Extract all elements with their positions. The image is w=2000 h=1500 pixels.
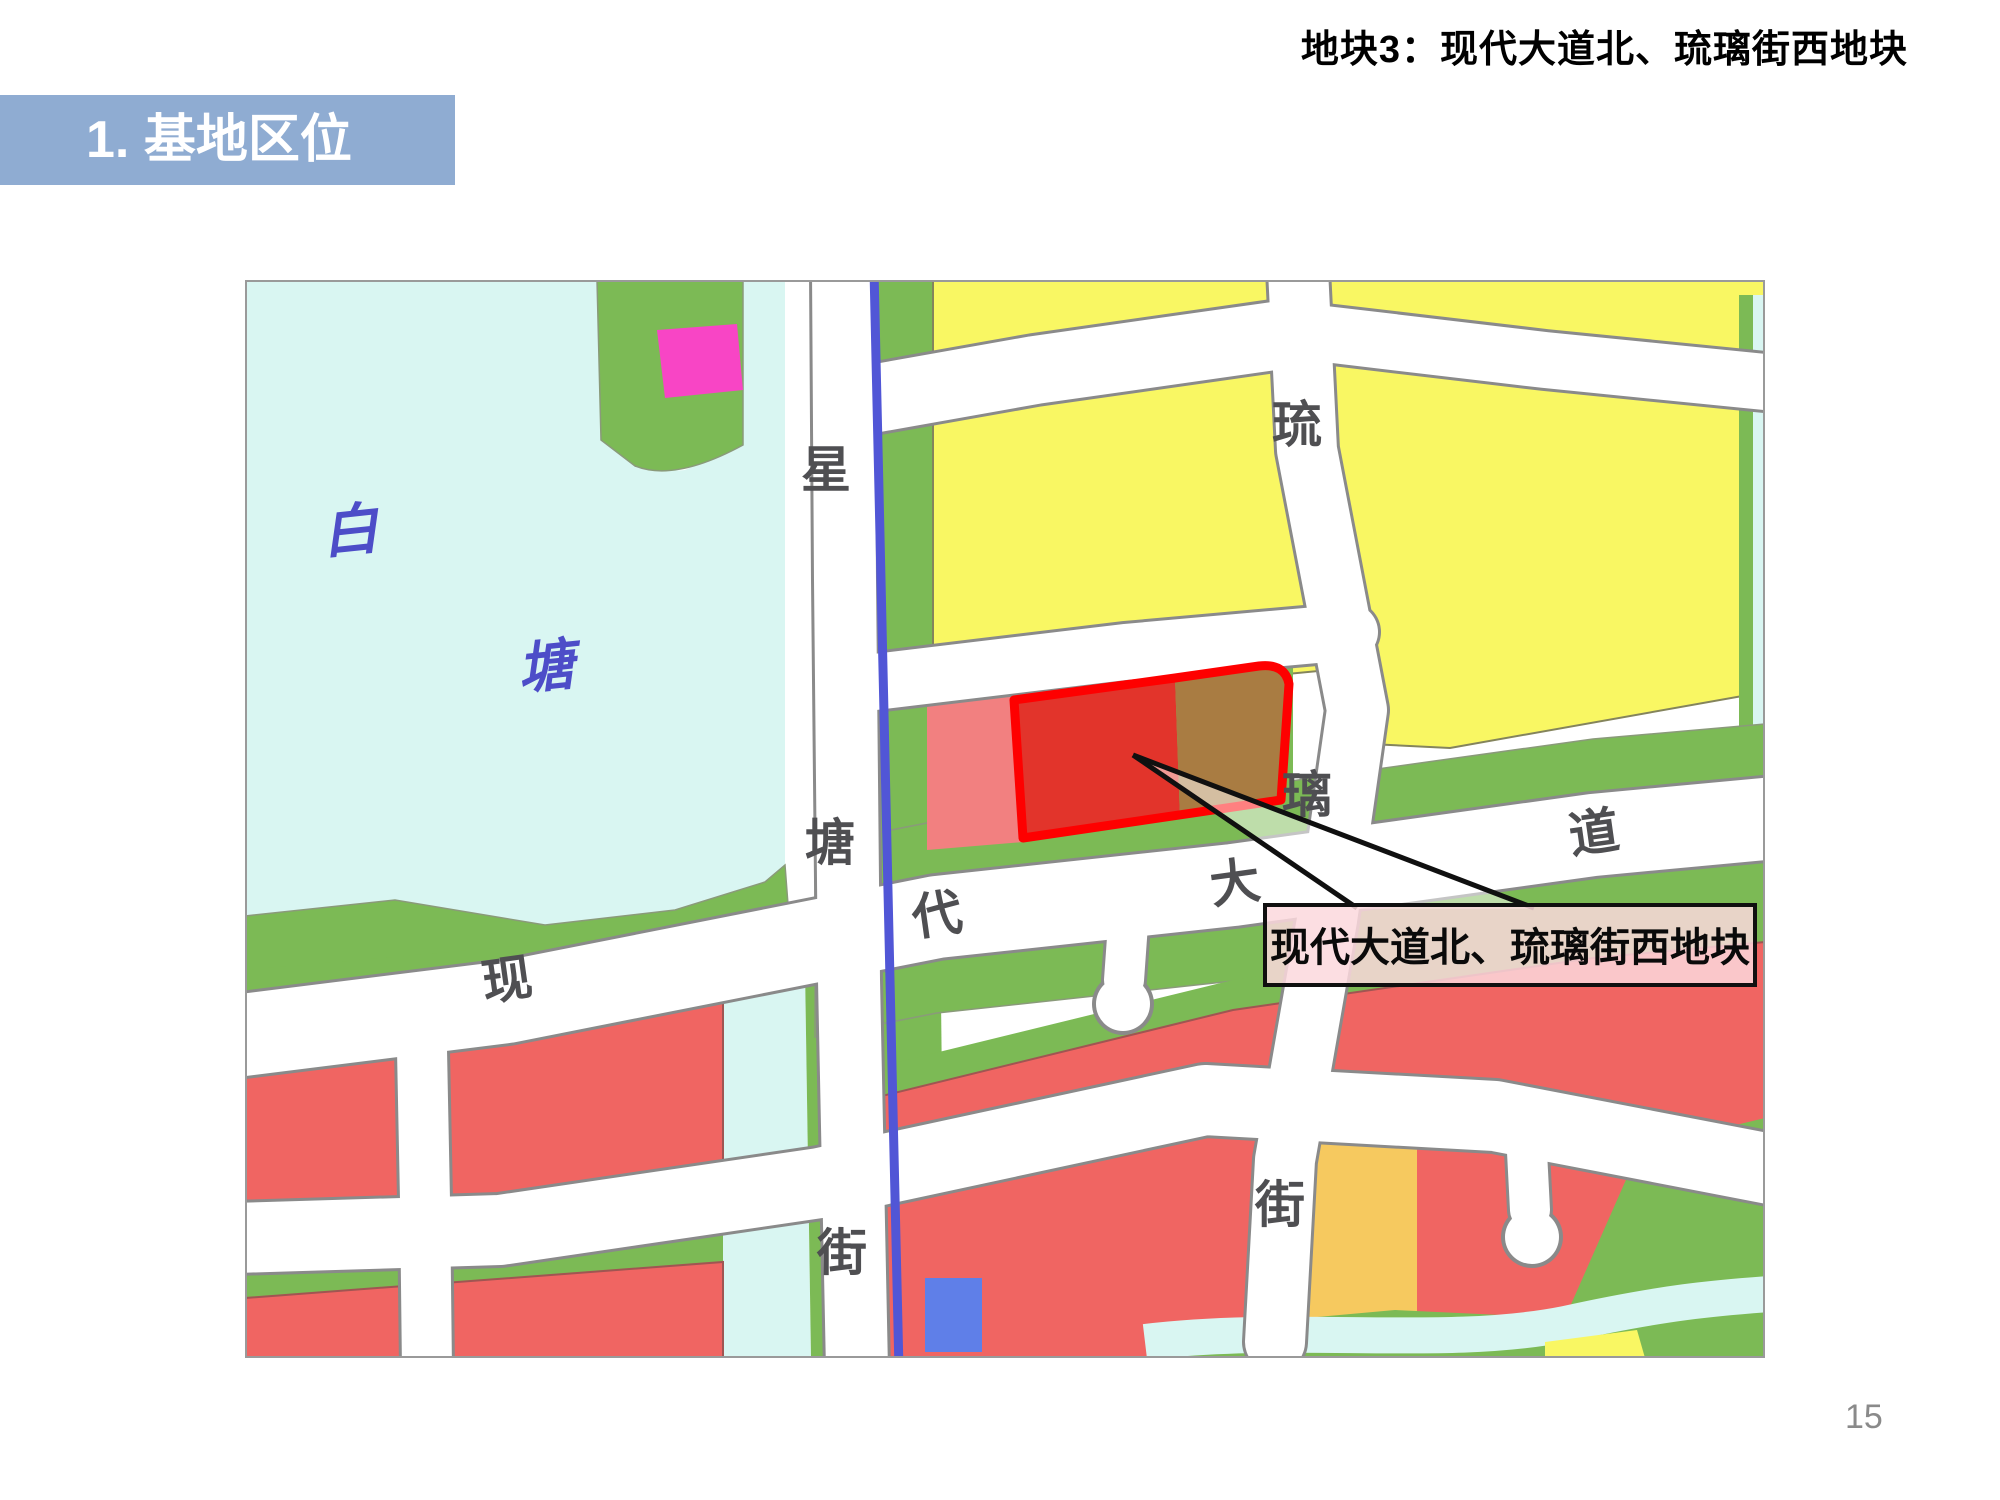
location-map: 白 塘 星 塘 街 现 代 大 道 琉 璃 街 现代大道北、琉璃街西地块 — [245, 280, 1765, 1358]
street-label-xiandai-4: 道 — [1565, 802, 1622, 864]
page-number: 15 — [1845, 1398, 1883, 1437]
street-label-xingtang-2: 塘 — [805, 815, 855, 871]
section-title: 1. 基地区位 — [0, 95, 455, 185]
map-pink-block — [927, 686, 1023, 850]
map-magenta-block — [657, 324, 743, 398]
street-label-xiandai-3: 大 — [1206, 852, 1263, 914]
street-label-xiandai-1: 现 — [478, 949, 535, 1011]
map-blue-block — [925, 1278, 982, 1352]
street-label-liuli-3: 街 — [1254, 1177, 1305, 1233]
section-title-bar: 1. 基地区位 — [0, 95, 455, 185]
street-label-xiandai-2: 代 — [907, 884, 965, 947]
street-label-liuli-1: 琉 — [1272, 397, 1322, 453]
callout-label: 现代大道北、琉璃街西地块 — [1270, 926, 1750, 970]
water-label-bai: 白 — [319, 498, 384, 566]
street-label-xingtang-1: 星 — [801, 442, 851, 498]
street-label-xingtang-3: 街 — [816, 1225, 867, 1281]
slide-header-title: 地块3：现代大道北、琉璃街西地块 — [1301, 18, 1908, 73]
slide: 地块3：现代大道北、琉璃街西地块 1. 基地区位 — [0, 0, 2000, 1500]
